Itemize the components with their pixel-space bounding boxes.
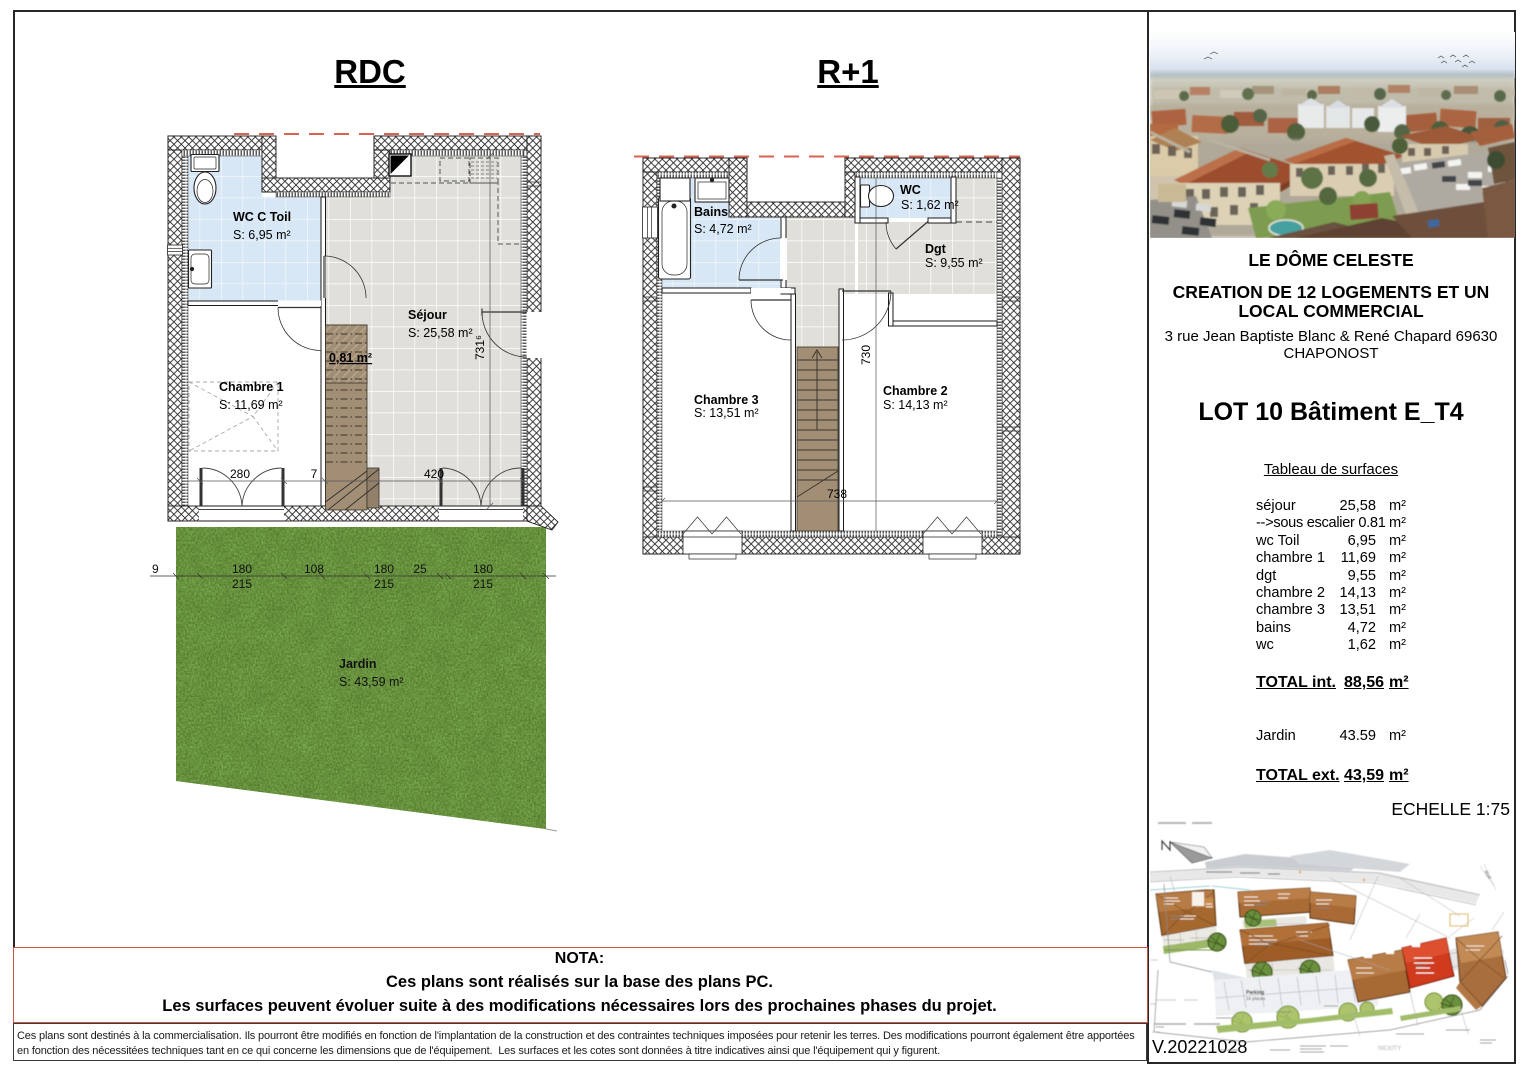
svg-text:215: 215 [473, 577, 493, 591]
svg-text:S: 25,58 m²: S: 25,58 m² [408, 326, 473, 340]
svg-text:NEXITY: NEXITY [1378, 1045, 1402, 1052]
svg-text:24 places: 24 places [1246, 996, 1266, 1001]
svg-text:180: 180 [473, 562, 493, 576]
svg-text:180: 180 [374, 562, 394, 576]
svg-text:738: 738 [827, 487, 847, 501]
svg-text:S: 43,59 m²: S: 43,59 m² [339, 675, 404, 689]
svg-text:730: 730 [859, 345, 873, 365]
svg-text:WC C Toil: WC C Toil [233, 210, 291, 224]
svg-text:S: 9,55 m²: S: 9,55 m² [925, 256, 983, 270]
svg-text:Chambre 2: Chambre 2 [883, 384, 948, 398]
svg-text:180: 180 [232, 562, 252, 576]
svg-text:0,81 m²: 0,81 m² [329, 351, 372, 365]
svg-text:S: 13,51 m²: S: 13,51 m² [694, 406, 759, 420]
svg-text:215: 215 [232, 577, 252, 591]
svg-text:S: 1,62 m²: S: 1,62 m² [901, 198, 959, 212]
svg-text:S: 14,13 m²: S: 14,13 m² [883, 398, 948, 412]
svg-text:S: 6,95 m²: S: 6,95 m² [233, 228, 291, 242]
svg-text:WC: WC [900, 183, 921, 197]
svg-text:215: 215 [374, 577, 394, 591]
svg-text:Séjour: Séjour [408, 308, 447, 322]
svg-text:420: 420 [424, 467, 444, 481]
svg-text:Jardin: Jardin [339, 657, 377, 671]
svg-text:9: 9 [152, 562, 159, 576]
svg-text:Chambre 3: Chambre 3 [694, 393, 759, 407]
svg-text:280: 280 [230, 467, 250, 481]
svg-text:7: 7 [311, 467, 318, 481]
svg-text:S: 4,72 m²: S: 4,72 m² [694, 222, 752, 236]
svg-text:Chambre 1: Chambre 1 [219, 380, 284, 394]
svg-text:Bains: Bains [694, 205, 728, 219]
svg-text:25: 25 [413, 562, 427, 576]
svg-text:108: 108 [304, 562, 324, 576]
svg-text:S: 11,69 m²: S: 11,69 m² [219, 398, 283, 412]
svg-text:Dgt: Dgt [925, 242, 947, 256]
svg-text:731⁶: 731⁶ [473, 335, 487, 360]
